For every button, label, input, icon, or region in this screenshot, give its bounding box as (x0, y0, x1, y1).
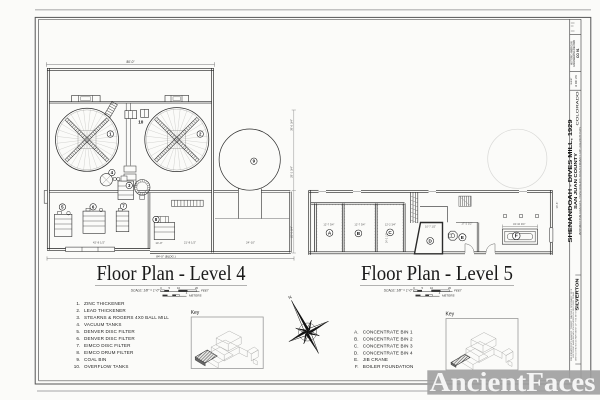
svg-text:CONCENTRATE BIN 1: CONCENTRATE BIN 1 (363, 330, 413, 335)
svg-text:10'-7 1/2": 10'-7 1/2" (425, 225, 436, 229)
svg-text:METERS: METERS (442, 294, 455, 298)
svg-text:24'-10": 24'-10" (246, 241, 255, 245)
svg-text:6.: 6. (76, 336, 80, 341)
svg-text:METERS: METERS (189, 294, 202, 298)
svg-text:OVERFLOW TANKS: OVERFLOW TANKS (84, 364, 129, 369)
svg-text:36'-8": 36'-8" (555, 202, 559, 209)
svg-text:SCALE: 1/8" = 1'-0": SCALE: 1/8" = 1'-0" (384, 288, 414, 292)
svg-text:7.: 7. (76, 343, 80, 348)
svg-text:FEET: FEET (454, 288, 463, 292)
svg-text:COAL BIN: COAL BIN (84, 357, 106, 362)
svg-text:28'-5 3/4": 28'-5 3/4" (289, 226, 293, 238)
svg-text:84'-0" (BLDG.): 84'-0" (BLDG.) (156, 254, 175, 258)
svg-text:4.: 4. (76, 322, 80, 327)
svg-text:9.: 9. (76, 357, 80, 362)
svg-text:39'-6 3/4": 39'-6 3/4" (289, 119, 293, 131)
svg-text:JIB CRANE: JIB CRANE (363, 357, 388, 362)
svg-text:20: 20 (195, 286, 198, 290)
svg-text:EIMCO DRUM FILTER: EIMCO DRUM FILTER (84, 350, 134, 355)
svg-text:E.: E. (354, 357, 358, 362)
svg-text:10.: 10. (74, 364, 80, 369)
svg-text:C.: C. (354, 343, 359, 348)
svg-text:SCALE: 1/8" = 1'-0": SCALE: 1/8" = 1'-0" (131, 288, 161, 292)
svg-text:EIMCO DISC FILTER: EIMCO DISC FILTER (84, 343, 131, 348)
svg-text:CO 91: CO 91 (576, 48, 580, 58)
svg-text:20: 20 (448, 286, 451, 290)
svg-text:14'-0": 14'-0" (155, 241, 162, 245)
svg-text:D.: D. (354, 350, 359, 355)
svg-text:F: F (515, 233, 518, 239)
svg-text:Floor Plan - Level 4: Floor Plan - Level 4 (97, 261, 246, 285)
svg-text:A.: A. (354, 330, 358, 335)
svg-text:Key: Key (446, 312, 455, 318)
svg-text:12'-2 3/4": 12'-2 3/4" (385, 223, 396, 227)
svg-text:6 OF 23: 6 OF 23 (574, 75, 578, 86)
svg-text:CONCENTRATE BIN 2: CONCENTRATE BIN 2 (363, 337, 413, 342)
svg-text:Key: Key (191, 310, 200, 316)
svg-text:DENVER DISC FILTER: DENVER DISC FILTER (84, 329, 135, 334)
svg-text:SHEET: SHEET (571, 77, 573, 85)
svg-text:AncientFaces: AncientFaces (430, 367, 596, 397)
svg-text:UNITED STATES DEPARTMENT OF TH: UNITED STATES DEPARTMENT OF THE INTERIOR… (574, 288, 577, 361)
svg-text:STEARNS & ROGERS 4X0 BALL MILL: STEARNS & ROGERS 4X0 BALL MILL (84, 315, 169, 320)
svg-text:COLORADO: COLORADO (574, 92, 579, 126)
svg-text:FEET: FEET (201, 288, 210, 292)
svg-text:BOILER FOUNDATION: BOILER FOUNDATION (363, 364, 414, 369)
svg-text:LEAD THICKENER: LEAD THICKENER (84, 308, 126, 313)
svg-text:34'-10 3/4": 34'-10 3/4" (513, 222, 525, 226)
svg-text:2.: 2. (76, 308, 80, 313)
svg-text:10: 10 (177, 286, 180, 290)
svg-text:ZINC THICKENER: ZINC THICKENER (84, 301, 125, 306)
svg-text:10: 10 (138, 119, 144, 124)
svg-text:42'-8 1/2": 42'-8 1/2" (93, 241, 105, 245)
svg-text:3.: 3. (76, 315, 80, 320)
svg-text:8.: 8. (76, 350, 80, 355)
svg-text:12'-7 3/4": 12'-7 3/4" (354, 223, 365, 227)
svg-text:VACUUM TANKS: VACUUM TANKS (84, 322, 122, 327)
svg-text:CONCENTRATE BIN 3: CONCENTRATE BIN 3 (363, 343, 413, 348)
svg-text:HISTORIC AMERICAN: HISTORIC AMERICAN (570, 41, 573, 65)
svg-text:80'-0": 80'-0" (126, 60, 134, 64)
svg-text:29'-1 3/4": 29'-1 3/4" (289, 166, 293, 178)
svg-text:B.: B. (354, 337, 358, 342)
svg-text:5.: 5. (76, 329, 80, 334)
svg-text:10: 10 (430, 286, 433, 290)
svg-text:SAN JUAN COUNTY: SAN JUAN COUNTY (573, 153, 578, 209)
svg-text:1.: 1. (76, 301, 80, 306)
svg-text:DENVER DISC FILTER: DENVER DISC FILTER (84, 336, 135, 341)
svg-text:12'-7 3/4": 12'-7 3/4" (323, 223, 334, 227)
svg-text:F.: F. (355, 364, 359, 369)
svg-text:CONCENTRATE BIN 4: CONCENTRATE BIN 4 (363, 350, 413, 355)
svg-text:ARRASTRA GULCH, TWO MILES SOUT: ARRASTRA GULCH, TWO MILES SOUTHEAST OF S… (578, 126, 581, 235)
svg-text:21'-8 1/2": 21'-8 1/2" (184, 241, 196, 245)
svg-text:Floor Plan - Level 5: Floor Plan - Level 5 (361, 261, 513, 285)
